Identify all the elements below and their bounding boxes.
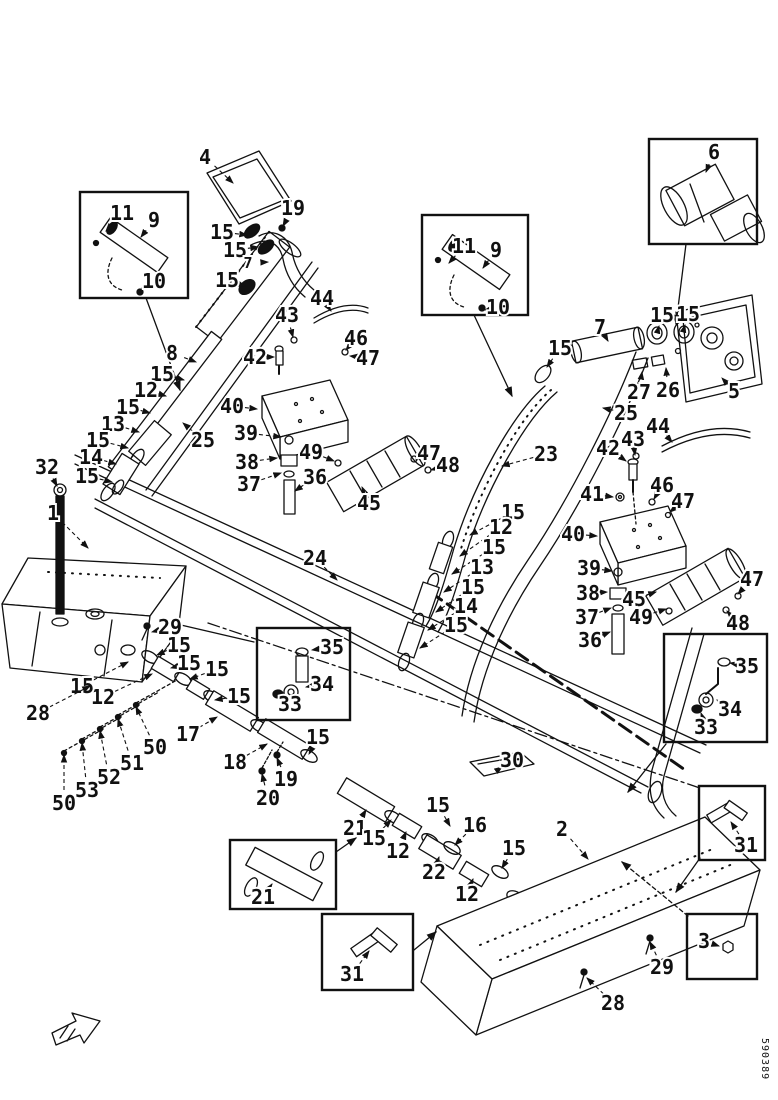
callout-leader-51: [118, 719, 128, 751]
elbow-13-left: [129, 421, 172, 466]
callout-leader-40: [245, 408, 257, 409]
tube-36-right: [612, 614, 624, 654]
callout-leader-26: [666, 368, 667, 377]
callout-9: 9: [490, 238, 502, 262]
callout-5: 5: [728, 379, 740, 403]
callout-31: 31: [734, 833, 758, 857]
callout-16: 16: [463, 813, 487, 837]
callout-42: 42: [596, 436, 620, 460]
callout-38: 38: [235, 450, 259, 474]
callout-leader-3: [716, 945, 719, 946]
callout-48: 48: [726, 611, 750, 635]
callout-11: 11: [452, 234, 476, 258]
elbow-13-right: [413, 582, 439, 618]
callout-6: 6: [708, 140, 720, 164]
tank-stud-29: [144, 623, 150, 629]
callout-10: 10: [142, 269, 166, 293]
callout-15: 15: [227, 684, 251, 708]
callout-23: 23: [534, 442, 558, 466]
bolt-46-right: [649, 499, 655, 505]
callout-49: 49: [299, 440, 323, 464]
callout-34: 34: [310, 672, 334, 696]
clamp-15: [490, 863, 511, 881]
callout-42: 42: [243, 345, 267, 369]
callout-31: 31: [340, 962, 364, 986]
callout-19: 19: [281, 196, 305, 220]
callout-50: 50: [52, 791, 76, 815]
parts-diagram-page: 4151915715444346474281512151315141525321…: [0, 0, 778, 1100]
washer-41: [616, 493, 624, 501]
callout-43: 43: [621, 427, 645, 451]
callout-15: 15: [306, 725, 330, 749]
callout-15: 15: [548, 336, 572, 360]
callout-43: 43: [275, 303, 299, 327]
elbow-14-left: [103, 453, 139, 494]
callout-leader-34: [306, 686, 309, 687]
callout-12: 12: [91, 685, 115, 709]
callout-53: 53: [75, 778, 99, 802]
callout-37: 37: [237, 472, 261, 496]
callout-33: 33: [694, 715, 718, 739]
callout-18: 18: [223, 750, 247, 774]
callout-leader-15: [444, 816, 450, 826]
callout-33: 33: [278, 692, 302, 716]
callout-leader-49: [323, 457, 334, 461]
callout-leader-1: [62, 522, 88, 548]
callout-10: 10: [486, 295, 510, 319]
fitting-34: [706, 668, 718, 694]
callout-35: 35: [735, 654, 759, 678]
callout-15: 15: [676, 302, 700, 326]
callout-leader-35: [312, 649, 319, 650]
callout-35: 35: [320, 635, 344, 659]
bolt-3-glyph: [723, 941, 733, 953]
exploded-parts-diagram: 4151915715444346474281512151315141525321…: [0, 0, 778, 1100]
callout-leader-15: [141, 410, 150, 413]
callout-15: 15: [362, 826, 386, 850]
tube-36-left: [284, 480, 295, 514]
callout-45: 45: [357, 491, 381, 515]
callout-28: 28: [26, 701, 50, 725]
callout-12: 12: [455, 882, 479, 906]
nozzle-19: [274, 752, 280, 758]
callout-47: 47: [356, 346, 380, 370]
callout-40: 40: [220, 394, 244, 418]
stud-29: [647, 935, 653, 941]
callout-15: 15: [502, 836, 526, 860]
bracket-40-left: [262, 380, 431, 514]
callout-leader-47: [350, 356, 355, 357]
bolt-19: [279, 225, 285, 231]
bolt-48-left: [425, 467, 431, 473]
travel-direction-arrow: [52, 1013, 100, 1045]
ring-37-left: [284, 471, 294, 477]
elbow-38-left: [281, 455, 297, 466]
callout-15: 15: [650, 303, 674, 327]
pipe-18: [258, 719, 311, 759]
callout-47: 47: [671, 489, 695, 513]
hose-44-right: [662, 428, 750, 446]
callout-48: 48: [436, 453, 460, 477]
callout-leader-39: [602, 570, 612, 571]
callout-51: 51: [120, 751, 144, 775]
callout-leader-37: [599, 608, 611, 612]
callout-41: 41: [580, 482, 604, 506]
callout-leader-35: [730, 663, 734, 664]
coupler-12-right: [429, 542, 452, 573]
callout-leader-20: [262, 774, 265, 785]
callout-1: 1: [47, 501, 59, 525]
clamp-31-wing: [724, 800, 747, 820]
callout-39: 39: [577, 556, 601, 580]
callout-15: 15: [205, 657, 229, 681]
callout-15: 15: [70, 674, 94, 698]
callout-11: 11: [110, 201, 134, 225]
callout-24: 24: [303, 546, 327, 570]
callout-leader-50: [136, 707, 149, 735]
bolt-33: [692, 705, 702, 713]
callout-leader-52: [100, 731, 107, 764]
callout-25: 25: [191, 428, 215, 452]
callout-44: 44: [646, 414, 670, 438]
callout-leader-9: [141, 230, 146, 237]
callout-leader-40: [586, 535, 597, 536]
callout-leader-2: [571, 839, 588, 859]
callout-40: 40: [561, 522, 585, 546]
callout-29: 29: [650, 955, 674, 979]
callout-20: 20: [256, 786, 280, 810]
nozzle-20: [259, 768, 265, 774]
callout-2: 2: [556, 817, 568, 841]
callout-50: 50: [143, 735, 167, 759]
callout-30: 30: [500, 748, 524, 772]
callout-leader-32: [53, 479, 57, 486]
callout-leader-19: [277, 758, 281, 767]
callout-36: 36: [303, 465, 327, 489]
inset-clamp-31-center: [322, 914, 413, 990]
callout-leader-53: [82, 743, 86, 777]
muffler-2: [421, 817, 760, 1035]
callout-26: 26: [656, 378, 680, 402]
callout-3: 3: [698, 929, 710, 953]
callout-15: 15: [75, 464, 99, 488]
callout-21: 21: [251, 885, 275, 909]
callout-15: 15: [215, 268, 239, 292]
callout-15: 15: [444, 613, 468, 637]
callout-17: 17: [176, 722, 200, 746]
callout-leader-15: [420, 632, 445, 648]
callout-38: 38: [576, 581, 600, 605]
bolt-43-left: [291, 337, 297, 343]
callout-9: 9: [148, 208, 160, 232]
bolt-49-left: [335, 460, 341, 466]
bolt-43-right: [633, 453, 639, 459]
fitting-26: [651, 355, 664, 366]
coupler-12: [392, 813, 421, 838]
callout-34: 34: [718, 697, 742, 721]
callout-12: 12: [386, 839, 410, 863]
callout-32: 32: [35, 455, 59, 479]
fitting-34: [296, 656, 308, 682]
stud-28: [581, 969, 587, 975]
callout-44: 44: [310, 286, 334, 310]
callout-49: 49: [629, 605, 653, 629]
callout-leader-37: [261, 473, 281, 480]
ring-35: [718, 658, 730, 666]
callout-52: 52: [97, 765, 121, 789]
callout-leader-43: [290, 328, 293, 337]
callout-leader-15: [502, 859, 507, 868]
callout-4: 4: [199, 145, 211, 169]
callout-leader-17: [199, 717, 217, 727]
callout-7: 7: [243, 254, 252, 272]
callout-39: 39: [234, 421, 258, 445]
callout-36: 36: [578, 628, 602, 652]
clamp-10: [479, 305, 485, 311]
callout-22: 22: [422, 860, 446, 884]
callout-15: 15: [426, 793, 450, 817]
callout-leader-41: [605, 496, 613, 497]
callout-25: 25: [614, 401, 638, 425]
clamp-15: [532, 362, 554, 385]
callout-47: 47: [740, 567, 764, 591]
callout-leader-18: [246, 744, 267, 756]
elbow-14-right: [398, 622, 424, 658]
callout-leader-38: [260, 458, 277, 460]
callout-37: 37: [575, 605, 599, 629]
callout-leader-48: [431, 469, 436, 470]
callout-15: 15: [177, 651, 201, 675]
callout-leader-36: [602, 632, 610, 635]
callout-28: 28: [601, 991, 625, 1015]
callout-7: 7: [594, 315, 606, 339]
figure-code: 590389: [759, 1038, 770, 1080]
